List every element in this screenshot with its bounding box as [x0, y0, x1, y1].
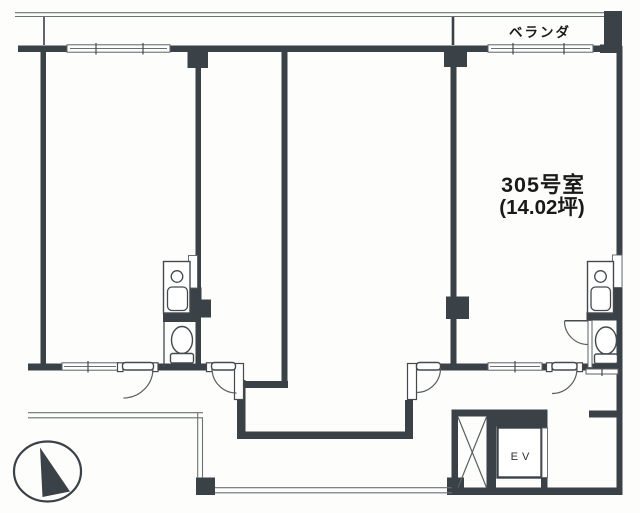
elevator-shaft-icon: [458, 417, 487, 488]
pillar: [604, 11, 622, 45]
alcove-wall: [237, 432, 413, 440]
sink-icon: [164, 262, 191, 314]
window: [586, 368, 618, 377]
elevator-label: EV: [511, 451, 534, 463]
door-swing: [207, 363, 244, 400]
door-swing: [565, 321, 589, 345]
door-swing: [118, 363, 159, 399]
room-number-label: 305号室: [501, 172, 585, 197]
pillar: [196, 478, 215, 496]
window: [488, 43, 593, 55]
toilet-icon: [171, 327, 194, 364]
balcony-label: ベランダ: [509, 24, 571, 40]
door-swing: [408, 363, 441, 400]
left-wall: [41, 46, 47, 371]
floor-plan-canvas: EV ベランダ 305号室 (14.02坪): [0, 0, 640, 513]
toilet-icon: [595, 327, 618, 364]
bottom-wall: [452, 488, 622, 496]
elevator-block: EV: [452, 410, 548, 490]
room-area-label: (14.02坪): [499, 196, 584, 219]
center-wall: [282, 52, 288, 388]
wc-room-wall: [588, 321, 592, 368]
window: [67, 43, 170, 55]
wc-module-right: [565, 255, 623, 368]
pillar: [188, 47, 209, 68]
north-arrow-icon: [14, 442, 81, 502]
floor-plan-svg: EV ベランダ 305号室 (14.02坪): [0, 0, 640, 513]
pillar: [446, 297, 469, 320]
pillar: [444, 47, 467, 67]
window: [488, 361, 542, 373]
pillars: [188, 11, 623, 495]
door-swing: [547, 363, 583, 394]
sink-icon: [588, 262, 614, 314]
wc-module-left: [163, 256, 211, 368]
elevator-door-slot: [542, 428, 548, 478]
window: [62, 361, 118, 373]
